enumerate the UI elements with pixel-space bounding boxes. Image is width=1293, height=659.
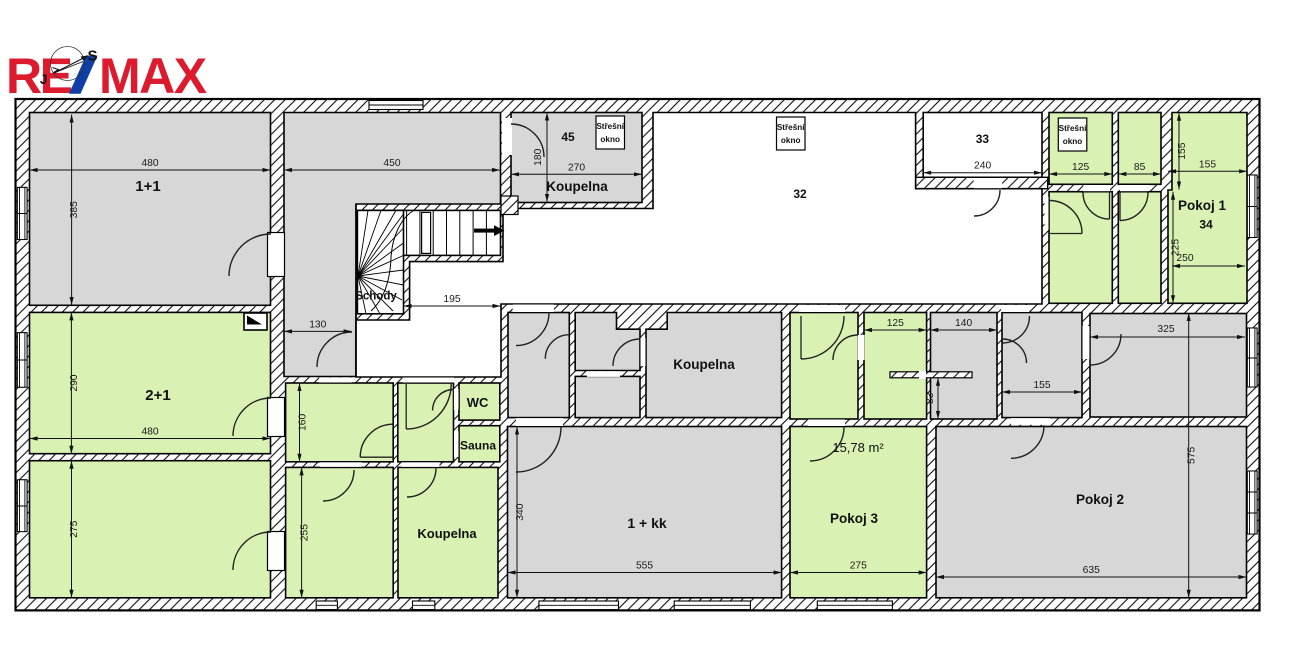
svg-text:325: 325: [1157, 324, 1174, 335]
svg-text:85: 85: [1134, 162, 1146, 173]
svg-text:160: 160: [298, 414, 309, 431]
svg-text:RE: RE: [6, 48, 72, 104]
svg-text:Střešní: Střešní: [1059, 124, 1087, 133]
svg-text:140: 140: [955, 318, 972, 329]
svg-text:okno: okno: [600, 135, 620, 144]
svg-text:Střešní: Střešní: [596, 122, 624, 131]
svg-text:Pokoj 3: Pokoj 3: [830, 511, 879, 526]
svg-text:480: 480: [141, 427, 158, 438]
svg-text:Koupelna: Koupelna: [673, 357, 735, 372]
svg-text:270: 270: [568, 162, 585, 173]
svg-text:155: 155: [1033, 380, 1050, 391]
svg-text:Koupelna: Koupelna: [417, 526, 477, 541]
svg-text:okno: okno: [1063, 137, 1083, 146]
svg-text:1 + kk: 1 + kk: [627, 515, 667, 531]
svg-text:155: 155: [1199, 159, 1216, 170]
svg-text:Sauna: Sauna: [460, 439, 496, 453]
svg-text:34: 34: [1199, 218, 1213, 232]
svg-text:240: 240: [974, 161, 991, 172]
svg-text:480: 480: [141, 158, 158, 169]
svg-text:635: 635: [1083, 565, 1100, 576]
svg-text:Pokoj 2: Pokoj 2: [1076, 492, 1124, 507]
svg-text:33: 33: [976, 132, 990, 146]
svg-text:155: 155: [1177, 142, 1188, 159]
svg-text:45: 45: [561, 130, 575, 144]
svg-text:275: 275: [69, 520, 80, 537]
svg-text:WC: WC: [467, 395, 489, 410]
svg-text:J: J: [40, 72, 48, 87]
svg-text:575: 575: [1187, 447, 1198, 464]
svg-text:Schody: Schody: [355, 291, 397, 303]
svg-text:83: 83: [925, 392, 936, 404]
svg-text:Pokoj 1: Pokoj 1: [1178, 198, 1227, 213]
svg-text:S: S: [87, 48, 97, 65]
svg-text:130: 130: [309, 319, 326, 330]
svg-text:195: 195: [443, 294, 460, 305]
svg-text:255: 255: [300, 524, 311, 541]
svg-text:okno: okno: [781, 136, 801, 145]
svg-text:385: 385: [69, 201, 80, 218]
svg-text:125: 125: [1072, 162, 1089, 173]
svg-text:15,78 m²: 15,78 m²: [832, 440, 884, 455]
svg-text:32: 32: [793, 187, 807, 201]
svg-text:Střešní: Střešní: [777, 123, 805, 132]
svg-text:340: 340: [515, 503, 526, 520]
svg-text:1+1: 1+1: [135, 178, 160, 195]
svg-text:275: 275: [850, 561, 867, 572]
svg-text:290: 290: [69, 374, 80, 391]
svg-text:180: 180: [533, 148, 544, 165]
svg-text:450: 450: [383, 158, 400, 169]
svg-text:250: 250: [1176, 253, 1193, 264]
svg-text:125: 125: [887, 318, 904, 329]
svg-text:555: 555: [636, 561, 653, 572]
svg-text:2+1: 2+1: [145, 387, 170, 404]
svg-text:MAX: MAX: [99, 48, 207, 104]
svg-text:Koupelna: Koupelna: [546, 179, 608, 194]
